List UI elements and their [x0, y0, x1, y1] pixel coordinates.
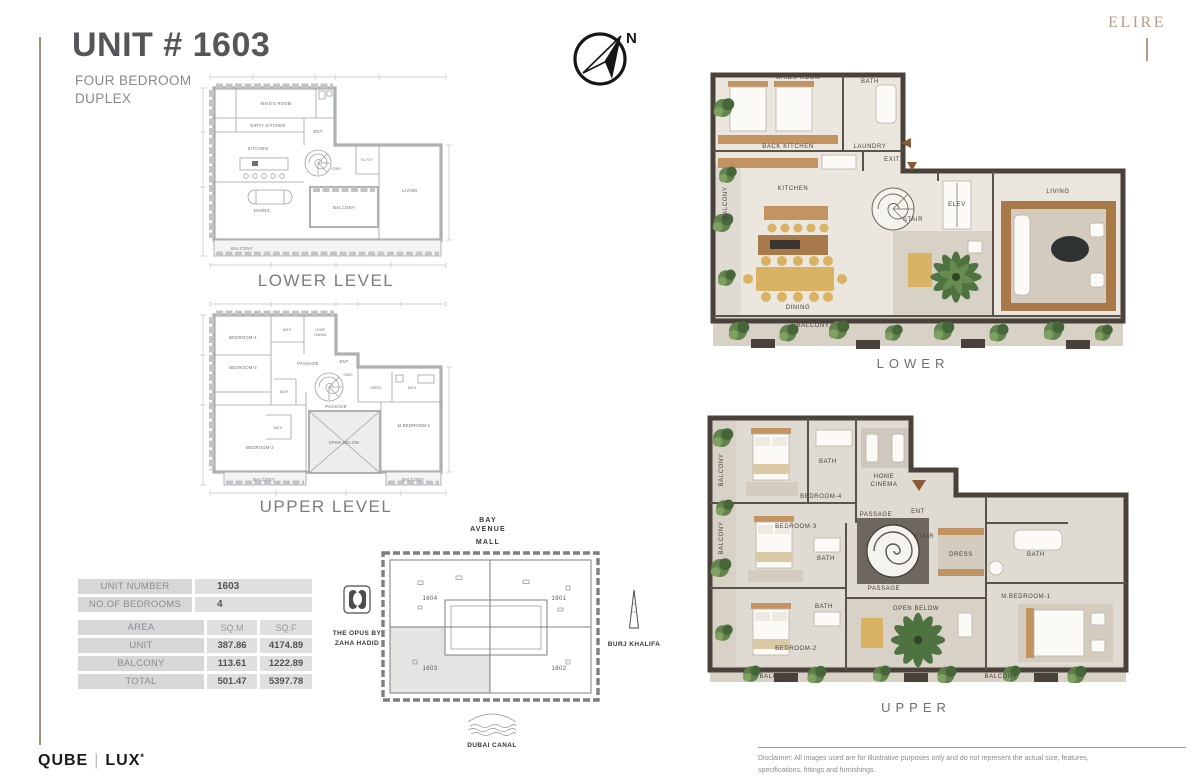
room-label: STAIR [331, 167, 341, 171]
room-label: DRESS [949, 552, 973, 558]
room-label: PASSAGE [325, 404, 346, 409]
table-row: UNIT 387.86 4174.89 [78, 638, 312, 653]
mall-label-line2: AVENUE [470, 526, 506, 533]
room-label: ENT [313, 129, 322, 134]
total-sqf: 5397.78 [260, 674, 312, 689]
left-accent-line [39, 37, 41, 745]
site-unit-1601: 1601 [552, 596, 567, 602]
table-row: AREA SQ.M SQ.F [78, 620, 312, 635]
room-label: BATH [280, 390, 289, 394]
room-label: DIRTY KITCHEN [250, 123, 285, 128]
room-label: PASSAGE [868, 586, 900, 592]
room-label: BATH [283, 328, 292, 332]
room-label: BEDROOM-4 [229, 335, 257, 340]
site-unit-1604: 1604 [423, 596, 438, 602]
lux-logo-text: LUX [105, 752, 140, 769]
sqf-header: SQ.F [260, 620, 312, 635]
room-label: PASSAGE [860, 512, 892, 518]
room-label: LIVING [1046, 189, 1069, 195]
room-label: BATH [274, 426, 283, 430]
mall-label-line1: BAY [479, 517, 497, 524]
room-label: BATH [1027, 552, 1045, 558]
unit-info-table: UNIT NUMBER 1603 NO.OF BEDROOMS 4 AREA S… [78, 579, 312, 692]
dubai-canal-icon [468, 714, 516, 736]
upper-render-caption: UPPER [696, 700, 1136, 715]
room-label: BALCONY [402, 477, 424, 482]
room-label: BALCONY [231, 246, 253, 251]
upper-rendered-plan: BALCONY BEDROOM-4 BATH HOME CINEMA BEDRO… [696, 408, 1136, 683]
room-label: BATH [819, 459, 837, 465]
page-subtitle: FOUR BEDROOM DUPLEX [75, 72, 192, 107]
disclaimer: Disclaimer: All images used are for illu… [758, 747, 1186, 777]
subtitle-line1: FOUR BEDROOM [75, 72, 192, 90]
room-label: HOME [874, 474, 894, 480]
room-label: HOME [315, 328, 325, 332]
room-label: BALCONY [797, 323, 830, 329]
room-label: BALCONY [253, 477, 275, 482]
elire-logo: ELIRE [1108, 14, 1166, 32]
unit-number-value: 1603 [195, 579, 312, 594]
table-row: NO.OF BEDROOMS 4 [78, 597, 312, 612]
lower-level-caption: LOWER LEVEL [196, 271, 456, 291]
upper-level-schematic-plan: BEDROOM-4 BATH HOME CINEMA BEDROOM-3 PAS… [196, 297, 456, 497]
subtitle-line2: DUPLEX [75, 90, 192, 108]
site-unit-1602: 1602 [552, 666, 567, 672]
opus-label-line2: ZAHA HADID [335, 640, 379, 647]
lux-logo-mark: * [140, 752, 145, 762]
lower-render-caption: LOWER [698, 356, 1128, 371]
bedrooms-label: NO.OF BEDROOMS [78, 597, 192, 612]
unit-sqf: 4174.89 [260, 638, 312, 653]
room-label: BACK KITCHEN [762, 144, 814, 150]
logo-divider: | [88, 752, 105, 769]
page-title: UNIT # 1603 [72, 26, 270, 65]
room-label: DRESS [371, 386, 382, 390]
area-label: AREA [78, 620, 204, 635]
opus-icon [344, 586, 370, 613]
room-label: OPEN BELOW [893, 606, 939, 612]
elire-tick-mark [1146, 38, 1148, 61]
room-label: STAIR [903, 217, 923, 223]
room-label: BATH [817, 556, 835, 562]
compass-north-label: N [626, 30, 637, 47]
table-row: BALCONY 113.61 1222.89 [78, 656, 312, 671]
qube-logo-text: QUBE [38, 752, 88, 769]
unit-number-label: UNIT NUMBER [78, 579, 192, 594]
room-label: BALCONY [760, 674, 793, 680]
room-label: KITCHEN [248, 146, 268, 151]
room-label: KITCHEN [778, 186, 809, 192]
table-row: TOTAL 501.47 5397.78 [78, 674, 312, 689]
brochure-page: UNIT # 1603 FOUR BEDROOM DUPLEX N ELIRE [0, 0, 1200, 783]
balcony-sqm: 113.61 [207, 656, 257, 671]
room-label: LIVING [402, 188, 417, 193]
sqm-header: SQ.M [207, 620, 257, 635]
room-label: BEDROOM-4 [800, 494, 842, 500]
room-label: MAID'S ROOM [260, 101, 291, 106]
qube-lux-logo: QUBE|LUX* [38, 752, 145, 770]
room-label: BALCONY [333, 205, 355, 210]
unit-area-label: UNIT [78, 638, 204, 653]
room-label: OPEN BELOW [329, 440, 360, 445]
room-label: BATH [861, 79, 879, 85]
room-label: ENT [339, 359, 348, 364]
room-label: PASSAGE [297, 361, 318, 366]
lower-level-schematic-plan: MAID'S ROOM DIRTY KITCHEN KITCHEN ENT ST… [196, 70, 456, 270]
bedrooms-value: 4 [195, 597, 312, 612]
dubai-canal-label: DUBAI CANAL [467, 742, 517, 749]
room-label: DINING [254, 208, 270, 213]
mall-label-line3: MALL [476, 539, 500, 546]
burj-khalifa-label: BURJ KHALIFA [608, 641, 660, 648]
room-label: DINING [786, 305, 811, 311]
burj-khalifa-icon [630, 590, 639, 628]
disclaimer-line1: Disclaimer: All images used are for illu… [758, 753, 1186, 765]
site-plan: BAY AVENUE MALL 1604 1601 1603 1602 THE … [318, 508, 666, 760]
room-label: LAUNDRY [854, 144, 887, 150]
total-sqm: 501.47 [207, 674, 257, 689]
room-label: BEDROOM-2 [246, 445, 274, 450]
room-label: MAIDS ROOM [775, 75, 820, 81]
unit-sqm: 387.86 [207, 638, 257, 653]
balcony-sqf: 1222.89 [260, 656, 312, 671]
room-label: EXIT [884, 157, 900, 163]
room-label: BEDROOM-3 [775, 524, 817, 530]
site-unit-1603: 1603 [423, 666, 438, 672]
room-label: BEDROOM-3 [229, 365, 257, 370]
room-label: STAIR [343, 373, 353, 377]
balcony-area-label: BALCONY [78, 656, 204, 671]
room-label: CINEMA [314, 333, 327, 337]
room-label: EL.FOY [361, 158, 373, 162]
room-label: BEDROOM-2 [775, 646, 817, 652]
total-area-label: TOTAL [78, 674, 204, 689]
room-label: M.BEDROOM-1 [1001, 594, 1051, 600]
room-label: M.BEDROOM-1 [398, 423, 431, 428]
room-label: ELEV [948, 202, 966, 208]
room-label: BATH [815, 604, 833, 610]
lower-rendered-plan: MAIDS ROOM BATH BACK KITCHEN LAUNDRY EXI… [698, 63, 1128, 353]
table-row: UNIT NUMBER 1603 [78, 579, 312, 594]
room-label: BALCONY [719, 454, 725, 487]
room-label: BALCONY [723, 187, 729, 220]
room-label: CINEMA [871, 482, 898, 488]
room-label: STAIR [914, 534, 934, 540]
highlighted-unit-1603 [390, 627, 490, 693]
room-label: BATH [408, 386, 417, 390]
opus-label-line1: THE OPUS BY [333, 630, 382, 637]
compass-icon: N [568, 16, 652, 94]
room-label: ENT [911, 509, 925, 515]
room-label: BALCONY [719, 522, 725, 555]
disclaimer-line2: specifications, fittings and furnishings… [758, 765, 1186, 777]
room-label: BALCONY [985, 674, 1018, 680]
